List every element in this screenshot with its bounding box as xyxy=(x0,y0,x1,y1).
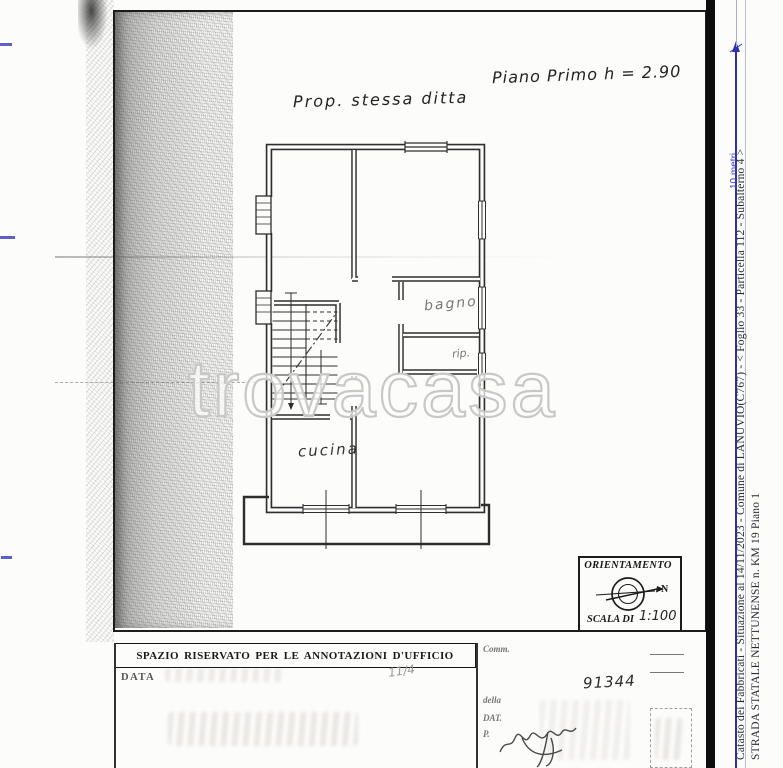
room-label-rip: rip. xyxy=(451,346,470,361)
cadastral-metadata-line2: STRADA STATALE NETTUNENSE n. KM 19 Piano… xyxy=(750,493,762,760)
north-label: N xyxy=(661,584,668,595)
watermark-text: trovacasa xyxy=(188,344,558,433)
cadastral-metadata-line1: Catasto dei Fabbricati - Situazione al 1… xyxy=(735,149,747,760)
balcony-outline xyxy=(244,497,489,544)
scale-value: 1:100 xyxy=(639,609,676,624)
fold-mark-top xyxy=(0,43,12,46)
floor-plan-drawing: trovacasa xyxy=(0,0,783,768)
compass-icon xyxy=(596,578,664,610)
orientation-title: ORIENTAMENTO xyxy=(582,560,674,571)
scan-edge-bar xyxy=(706,0,715,768)
scanned-cadastral-sheet: SPAZIO RISERVATO PER LE ANNOTAZIONI D'UF… xyxy=(0,0,783,768)
measure-line-extension xyxy=(736,0,737,47)
fold-mark-middle xyxy=(0,236,15,239)
scale-label: SCALA DI xyxy=(587,614,634,625)
signature-scribble xyxy=(500,728,576,767)
fold-mark-bottom xyxy=(1,556,12,559)
room-label-cucina: cucina xyxy=(298,439,360,460)
